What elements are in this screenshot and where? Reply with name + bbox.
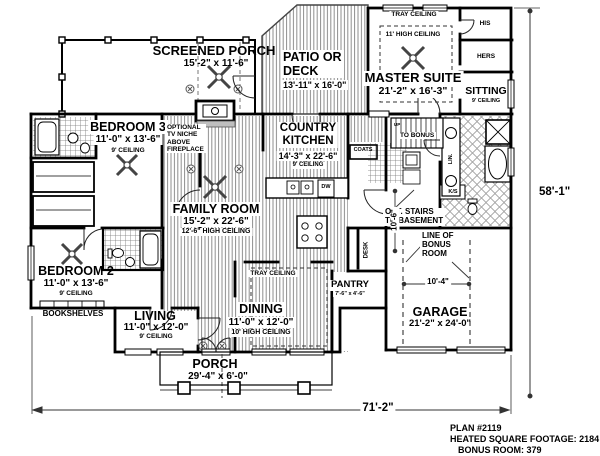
sink-icon [446,128,457,139]
kitchen-ceiling: 9' CEILING [291,162,326,169]
master-suite-label: MASTER SUITE [363,71,464,86]
floor-plan-page: SCREENED PORCH 15'-2" x 11'-6" PATIO OR … [0,0,600,456]
plan-number: PLAN #2119 [450,423,502,433]
sink-icon [126,258,135,267]
screened-porch-dims: 15'-2" x 11'-6" [184,58,249,69]
master-suite-dims: 21'-2" x 16'-3" [377,86,450,98]
dining-label: DINING [237,302,285,316]
pantry-dims: 7'-6" x 4'-6" [333,291,367,297]
rear-hall-floor [350,116,384,142]
stairs-leader-line [395,190,414,208]
family-room-dims: 15'-2" x 22'-6" [181,216,250,227]
ceiling-fan-icon [62,244,82,264]
porch-label: PORCH [192,357,237,371]
master-ceiling-label: 11' HIGH CEILING [384,31,443,38]
porch-columns [178,382,310,394]
knee-space-label: K/S [448,189,457,195]
rear-door [369,111,389,117]
mudroom-tile [368,143,407,183]
ceiling-fan-icon [117,155,137,175]
desk-label: DESK [364,242,371,259]
living-label: LIVING [134,309,176,323]
linen-label: LIN. [448,154,454,164]
pantry-label: PANTRY [329,280,371,291]
bedroom2-ceiling: 9' CEILING [59,290,92,297]
master-tray-label: TRAY CEILING [389,11,438,18]
ceiling-fan-icon [402,47,424,69]
coats-label: COATS [354,147,373,153]
dining-tray-label: TRAY CEILING [248,270,297,277]
island-range [297,216,327,248]
bonus-room-footage: BONUS ROOM: 379 [458,445,542,455]
tub-icon [485,146,510,182]
hers-closet-label: HERS [477,53,495,60]
family-room-label: FAMILY ROOM [171,202,262,216]
screened-porch-label: SCREENED PORCH [153,44,276,59]
shower-icon [486,120,510,144]
ceiling-fan-icon [208,66,230,88]
kitchen-dims: 14'-3" x 22'-6" [277,151,340,161]
garage-dims: 21'-2" x 24'-0" [409,319,471,330]
dishwasher-label: DW [321,184,330,190]
tv-niche-note: OPTIONAL TV NICHE ABOVE FIREPLACE [165,124,206,153]
depth-dimension: 58'-1" [537,186,572,199]
bonus-depth-dim-label: 10'-6" [391,207,400,233]
dining-dims: 11'-0" x 12'-0" [227,317,296,328]
his-closet-label: HIS [480,20,491,27]
porch-dims: 29'-4" x 6'-0" [188,371,248,382]
bedroom3-label: BEDROOM 3 [88,120,168,134]
toilet-icon [81,143,90,153]
width-dimension: 71'-2" [360,402,395,415]
bedroom2-label: BEDROOM 2 [38,264,114,278]
sink-icon [301,181,313,194]
sink-icon [287,181,299,194]
dining-ceiling: 10' HIGH CEILING [229,329,292,337]
to-bonus-label: TO BONUS [398,132,436,139]
kitchen-label: COUNTRY KITCHEN [278,122,338,148]
patio-dims: 13'-11" x 16'-0" [281,80,348,90]
bedroom2-dims: 11'-0" x 13'-6" [44,278,109,289]
sink-icon [68,133,78,143]
stairs-up-label: UP [394,122,400,127]
garage-label: GARAGE [413,305,468,319]
living-ceiling: 9' CEILING [139,333,172,340]
bonus-room-note: LINE OF BONUS ROOM [420,232,456,259]
family-room-ceiling: 12'-6" HIGH CEILING [180,228,253,236]
heated-square-footage: HEATED SQUARE FOOTAGE: 2184 [450,434,599,444]
bonus-width-dim-label: 10'-4" [425,278,451,287]
patio-label: PATIO OR DECK [281,50,344,78]
toilet-icon [108,249,124,259]
sitting-ceiling: 9' CEILING [472,98,500,104]
bookshelves-label: BOOKSHELVES [41,310,106,319]
sink-icon [446,176,457,187]
bedroom3-dims: 11'-0" x 13'-6" [94,134,163,145]
bedroom3-ceiling: 9' CEILING [109,147,146,154]
living-dims: 11'-0" x 12'-0" [124,322,189,333]
toilet-icon [468,199,477,215]
sitting-label: SITTING [465,86,506,98]
